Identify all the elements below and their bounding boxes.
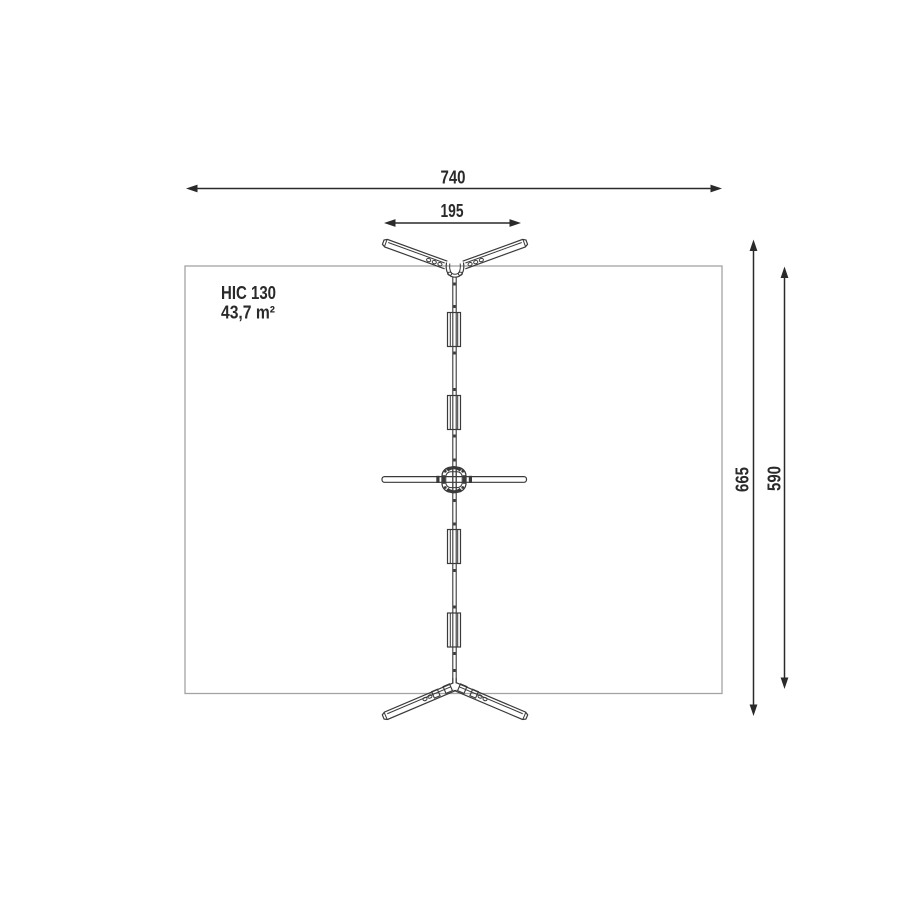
- svg-text:590: 590: [765, 466, 785, 491]
- svg-text:43,7 m²: 43,7 m²: [221, 303, 275, 323]
- svg-text:195: 195: [441, 201, 464, 221]
- svg-text:HIC 130: HIC 130: [221, 283, 276, 303]
- svg-text:665: 665: [733, 467, 753, 492]
- svg-text:740: 740: [441, 168, 466, 188]
